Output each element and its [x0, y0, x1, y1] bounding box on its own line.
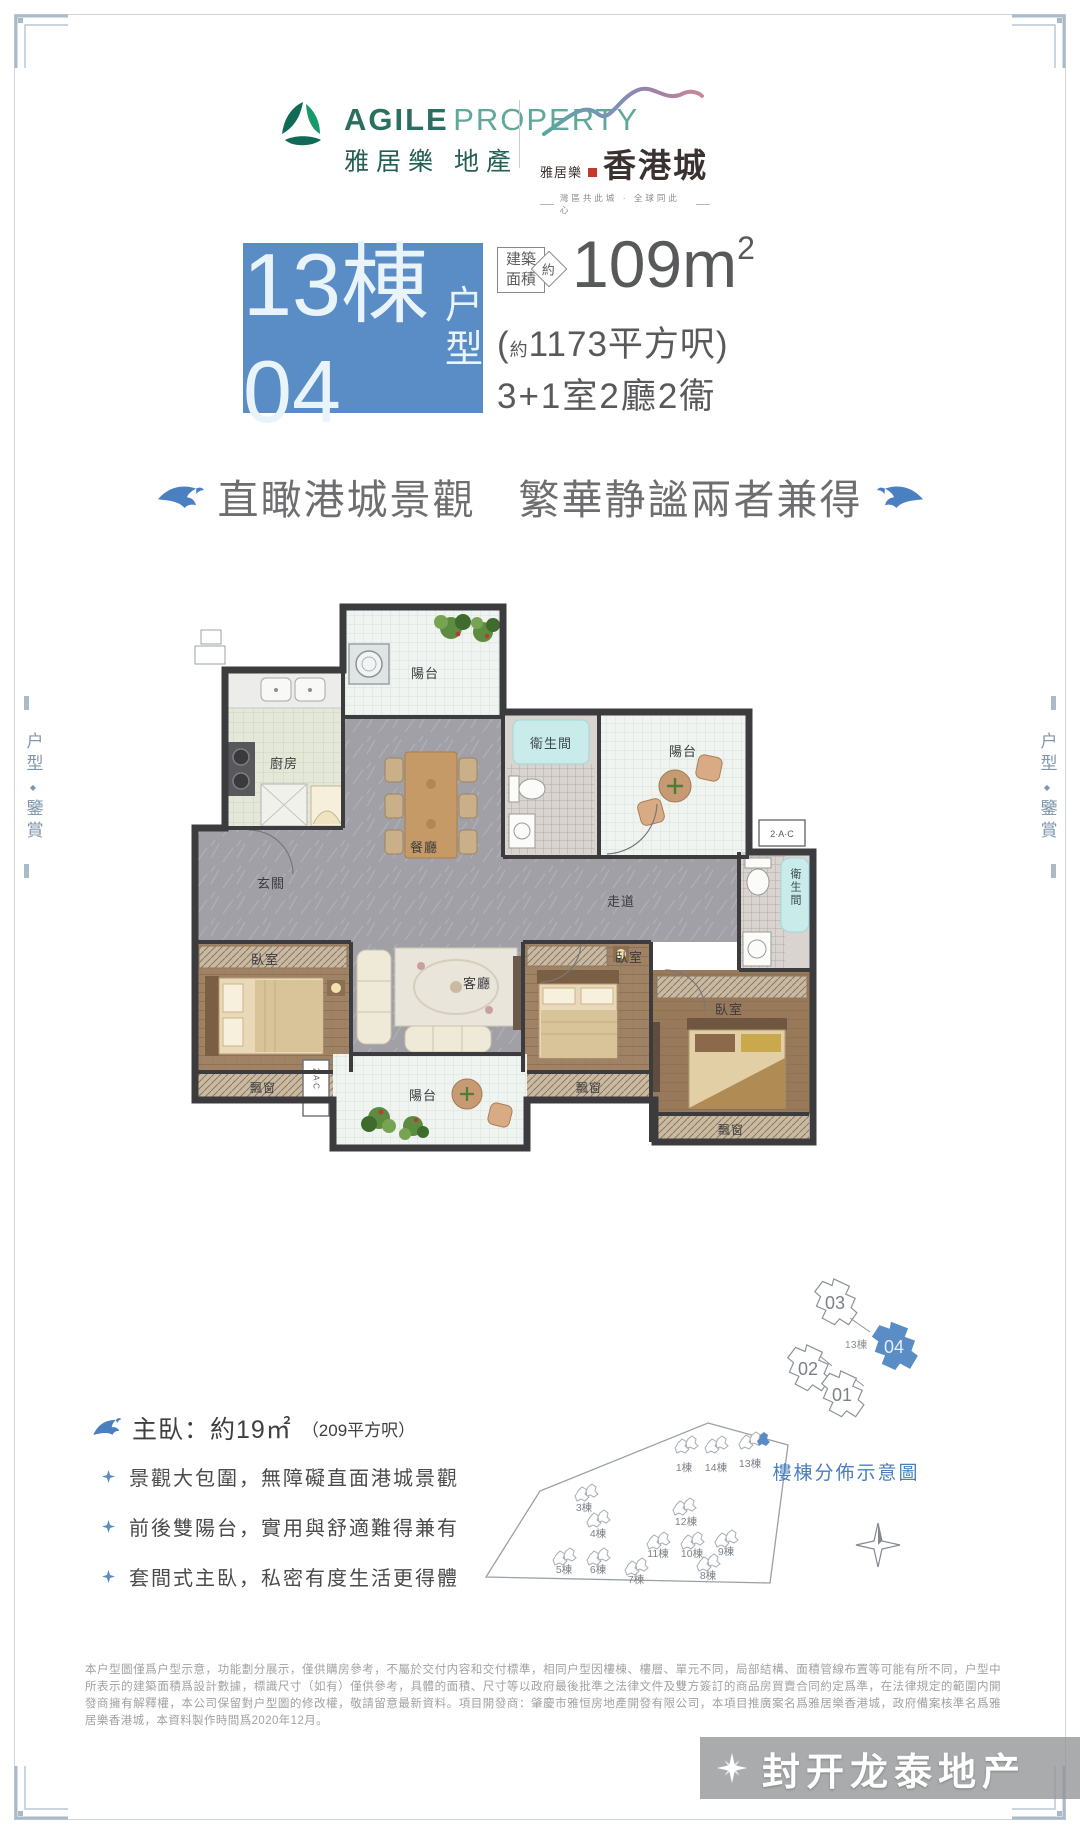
selling-point-1: 景觀大包圍，無障礙直面港城景觀 — [102, 1462, 459, 1491]
area-number: 109m — [572, 227, 737, 301]
side-label-text: 鑒賞 — [21, 799, 46, 843]
master-suite-line: 主臥：約19㎡ （209平方呎） — [92, 1410, 415, 1446]
bathroom-1: 衛生間 — [503, 712, 599, 857]
compass-icon — [856, 1523, 900, 1567]
washbasin-icon — [509, 814, 535, 848]
bay-window-label: 飄窗 — [576, 1081, 602, 1095]
area-hk-sqft: (約1173平方呎) — [497, 316, 729, 367]
area-sup: 2 — [737, 230, 755, 266]
room-label-bedroom-left: 臥室 — [251, 952, 279, 967]
approx-char: 約 — [542, 259, 555, 278]
building-label: 7棟 — [628, 1573, 645, 1586]
unit-01-label: 01 — [832, 1385, 852, 1405]
bedroom-left: 臥室 — [195, 942, 351, 1072]
paren: ( — [497, 325, 510, 364]
unit-number: 13棟04 — [243, 214, 439, 443]
hk-prefix: 雅居樂 — [540, 162, 582, 181]
selling-point-text: 景觀大包圍，無障礙直面港城景觀 — [129, 1462, 459, 1491]
room-label-balcony-top: 陽台 — [411, 666, 439, 681]
frame-tick — [24, 864, 29, 878]
approx-small: 約 — [510, 340, 529, 360]
diamond-bullet-icon — [102, 1470, 115, 1483]
entry-steps — [195, 630, 225, 664]
balcony-top-right: 陽台 — [599, 712, 749, 857]
frame-corner-ornament — [12, 12, 70, 70]
poster-page: 户型 ◆ 鑒賞 户型 ◆ 鑒賞 AGILE PROPERTY 雅居樂 地產 — [0, 0, 1080, 1834]
unit-position-diagram: 03 02 01 04 13棟 — [770, 1272, 930, 1424]
unit-02-label: 02 — [798, 1359, 818, 1379]
tagline-text: 直瞰港城景觀 繁華静謐兩者兼得 — [218, 466, 863, 526]
dining-area: 餐廳 — [385, 752, 477, 858]
building-label: 6棟 — [590, 1563, 607, 1576]
unit-type-char: 型 — [445, 328, 483, 372]
frame-corner-ornament — [12, 1764, 70, 1822]
room-label-living: 客廳 — [463, 976, 491, 991]
building-label: 12棟 — [675, 1515, 698, 1528]
selling-point-text: 前後雙陽台，實用與舒適難得兼有 — [129, 1512, 459, 1541]
red-seal-icon — [588, 168, 597, 177]
room-label-bathroom-2: 衛生間 — [789, 868, 802, 907]
room-label-bedroom-master: 臥室 — [715, 1002, 743, 1017]
diamond-separator-icon: ◆ — [30, 783, 36, 792]
selling-point-3: 套間式主臥，私密有度生活更得體 — [102, 1562, 459, 1591]
building-label: 3棟 — [576, 1501, 593, 1514]
toilet-icon — [745, 858, 771, 868]
room-label-dining: 餐廳 — [410, 840, 438, 855]
selling-point-text: 套間式主臥，私密有度生活更得體 — [129, 1562, 459, 1591]
agile-name-en: AGILE — [344, 102, 449, 137]
master-area-text: 主臥：約19㎡ — [132, 1410, 292, 1446]
bedroom-middle: 臥室 — [523, 942, 651, 1072]
room-label-balcony-bottom: 陽台 — [409, 1088, 437, 1103]
master-area-sqft: （209平方呎） — [302, 1416, 415, 1441]
diamond-bullet-icon — [102, 1570, 115, 1583]
chair-icon — [459, 758, 477, 782]
sofa-icon — [357, 950, 391, 1044]
frame-tick — [24, 696, 29, 710]
building-label: 14棟 — [705, 1461, 728, 1474]
sofa-icon — [405, 1026, 491, 1052]
site-plan: 1棟 14棟 13棟 3棟 4棟 12棟 11棟 10棟 9棟 5棟 6棟 7棟… — [470, 1405, 930, 1610]
area-value: 109m2 — [572, 226, 755, 302]
chair-icon — [459, 830, 477, 854]
floorplan: 陽台 廚房 — [183, 552, 828, 1170]
unit-03-label: 03 — [825, 1293, 845, 1313]
room-label-kitchen: 廚房 — [270, 756, 298, 771]
dolphin-icon — [874, 473, 926, 519]
building-label: 13棟 — [739, 1457, 762, 1470]
toilet-icon — [509, 776, 519, 802]
agile-logo — [272, 98, 334, 167]
building-label: 10棟 — [681, 1547, 704, 1560]
bed-icon — [537, 970, 619, 984]
room-layout: 3+1室2廳2衞 — [497, 368, 716, 419]
side-label-text: 户型 — [21, 732, 46, 776]
header-divider — [519, 100, 520, 168]
tagline-row: 直瞰港城景觀 繁華静謐兩者兼得 — [0, 466, 1080, 526]
bay-window-master: 飄窗 — [655, 1114, 809, 1142]
ac-label: 2·A·C — [770, 829, 794, 839]
room-label-bathroom-1: 衛生間 — [530, 736, 572, 751]
side-label-right: 户型 ◆ 鑒賞 — [1030, 722, 1064, 852]
chair-icon — [385, 794, 403, 818]
dolphin-icon — [153, 473, 205, 519]
bay-window-middle: 飄窗 — [527, 1072, 649, 1100]
washbasin-icon — [743, 932, 771, 966]
frame-corner-ornament — [1010, 12, 1068, 70]
hk-project-name: 香港城 — [603, 139, 708, 187]
unit-type-label: 户 型 — [445, 284, 483, 372]
building-number-label: 13棟 — [845, 1338, 868, 1351]
frame-tick — [1051, 696, 1056, 710]
building-label: 9棟 — [718, 1545, 735, 1558]
bay-window-label: 飄窗 — [250, 1081, 276, 1095]
room-label-balcony-right: 陽台 — [669, 744, 697, 759]
chair-icon — [385, 758, 403, 782]
building-label: 1棟 — [676, 1461, 693, 1474]
kitchen: 廚房 — [225, 670, 345, 828]
watermark-strip: 封开龙泰地产 — [700, 1737, 1080, 1799]
chair-icon — [695, 754, 723, 782]
bed-icon — [687, 1018, 787, 1030]
side-label-left: 户型 ◆ 鑒賞 — [16, 722, 50, 852]
unit-type-char: 户 — [445, 284, 483, 328]
room-label-bedroom-middle: 臥室 — [615, 950, 643, 965]
building-label: 11棟 — [647, 1547, 669, 1560]
bedroom-master: 臥室 — [651, 970, 813, 1114]
bed-icon — [205, 976, 219, 1056]
frame-tick — [1051, 864, 1056, 878]
bay-window-label: 飄窗 — [718, 1123, 744, 1137]
building-label: 4棟 — [590, 1527, 607, 1540]
hk-slogan: 灣區共此城 · 全球同此心 — [540, 192, 710, 216]
hk-city-logo: 雅居樂 香港城 灣區共此城 · 全球同此心 — [540, 80, 710, 216]
unit-04-label: 04 — [884, 1337, 904, 1357]
site-plan-title: 樓棟分佈示意圖 — [772, 1462, 919, 1484]
selling-point-2: 前後雙陽台，實用與舒適難得兼有 — [102, 1512, 459, 1541]
unit-title-box: 13棟04 户 型 — [243, 243, 483, 413]
disclaimer-text: 本户型圖僅爲户型示意，功能劃分展示，僅供購房參考，不屬於交付内容和交付標準，相同… — [85, 1662, 1001, 1730]
mountain-curve-icon — [540, 80, 706, 140]
building-label: 5棟 — [556, 1563, 573, 1576]
side-label-text: 鑒賞 — [1035, 799, 1060, 843]
diamond-separator-icon: ◆ — [1044, 783, 1050, 792]
bathroom-2: 衛生間 — [739, 852, 813, 970]
balcony-top: 陽台 — [343, 607, 503, 717]
tv-cabinet-icon — [653, 1022, 660, 1092]
chair-icon — [385, 830, 403, 854]
chair-icon — [459, 794, 477, 818]
built-area-tag-line: 面積 — [506, 270, 536, 290]
watermark-text: 封开龙泰地产 — [762, 1741, 1026, 1796]
diamond-bullet-icon — [102, 1520, 115, 1533]
compass-star-icon — [714, 1750, 750, 1786]
side-label-text: 户型 — [1035, 732, 1060, 776]
dolphin-icon — [92, 1417, 122, 1439]
building-label: 8棟 — [700, 1569, 717, 1582]
room-label-corridor: 走道 — [607, 894, 635, 909]
ac-platform-right: 2·A·C — [759, 820, 805, 846]
sqft-text: 1173平方呎) — [529, 325, 729, 364]
room-label-foyer: 玄關 — [257, 876, 285, 891]
balcony-bottom: 2·A·C 陽台 — [303, 1054, 527, 1148]
agile-leaf-icon — [272, 98, 334, 162]
